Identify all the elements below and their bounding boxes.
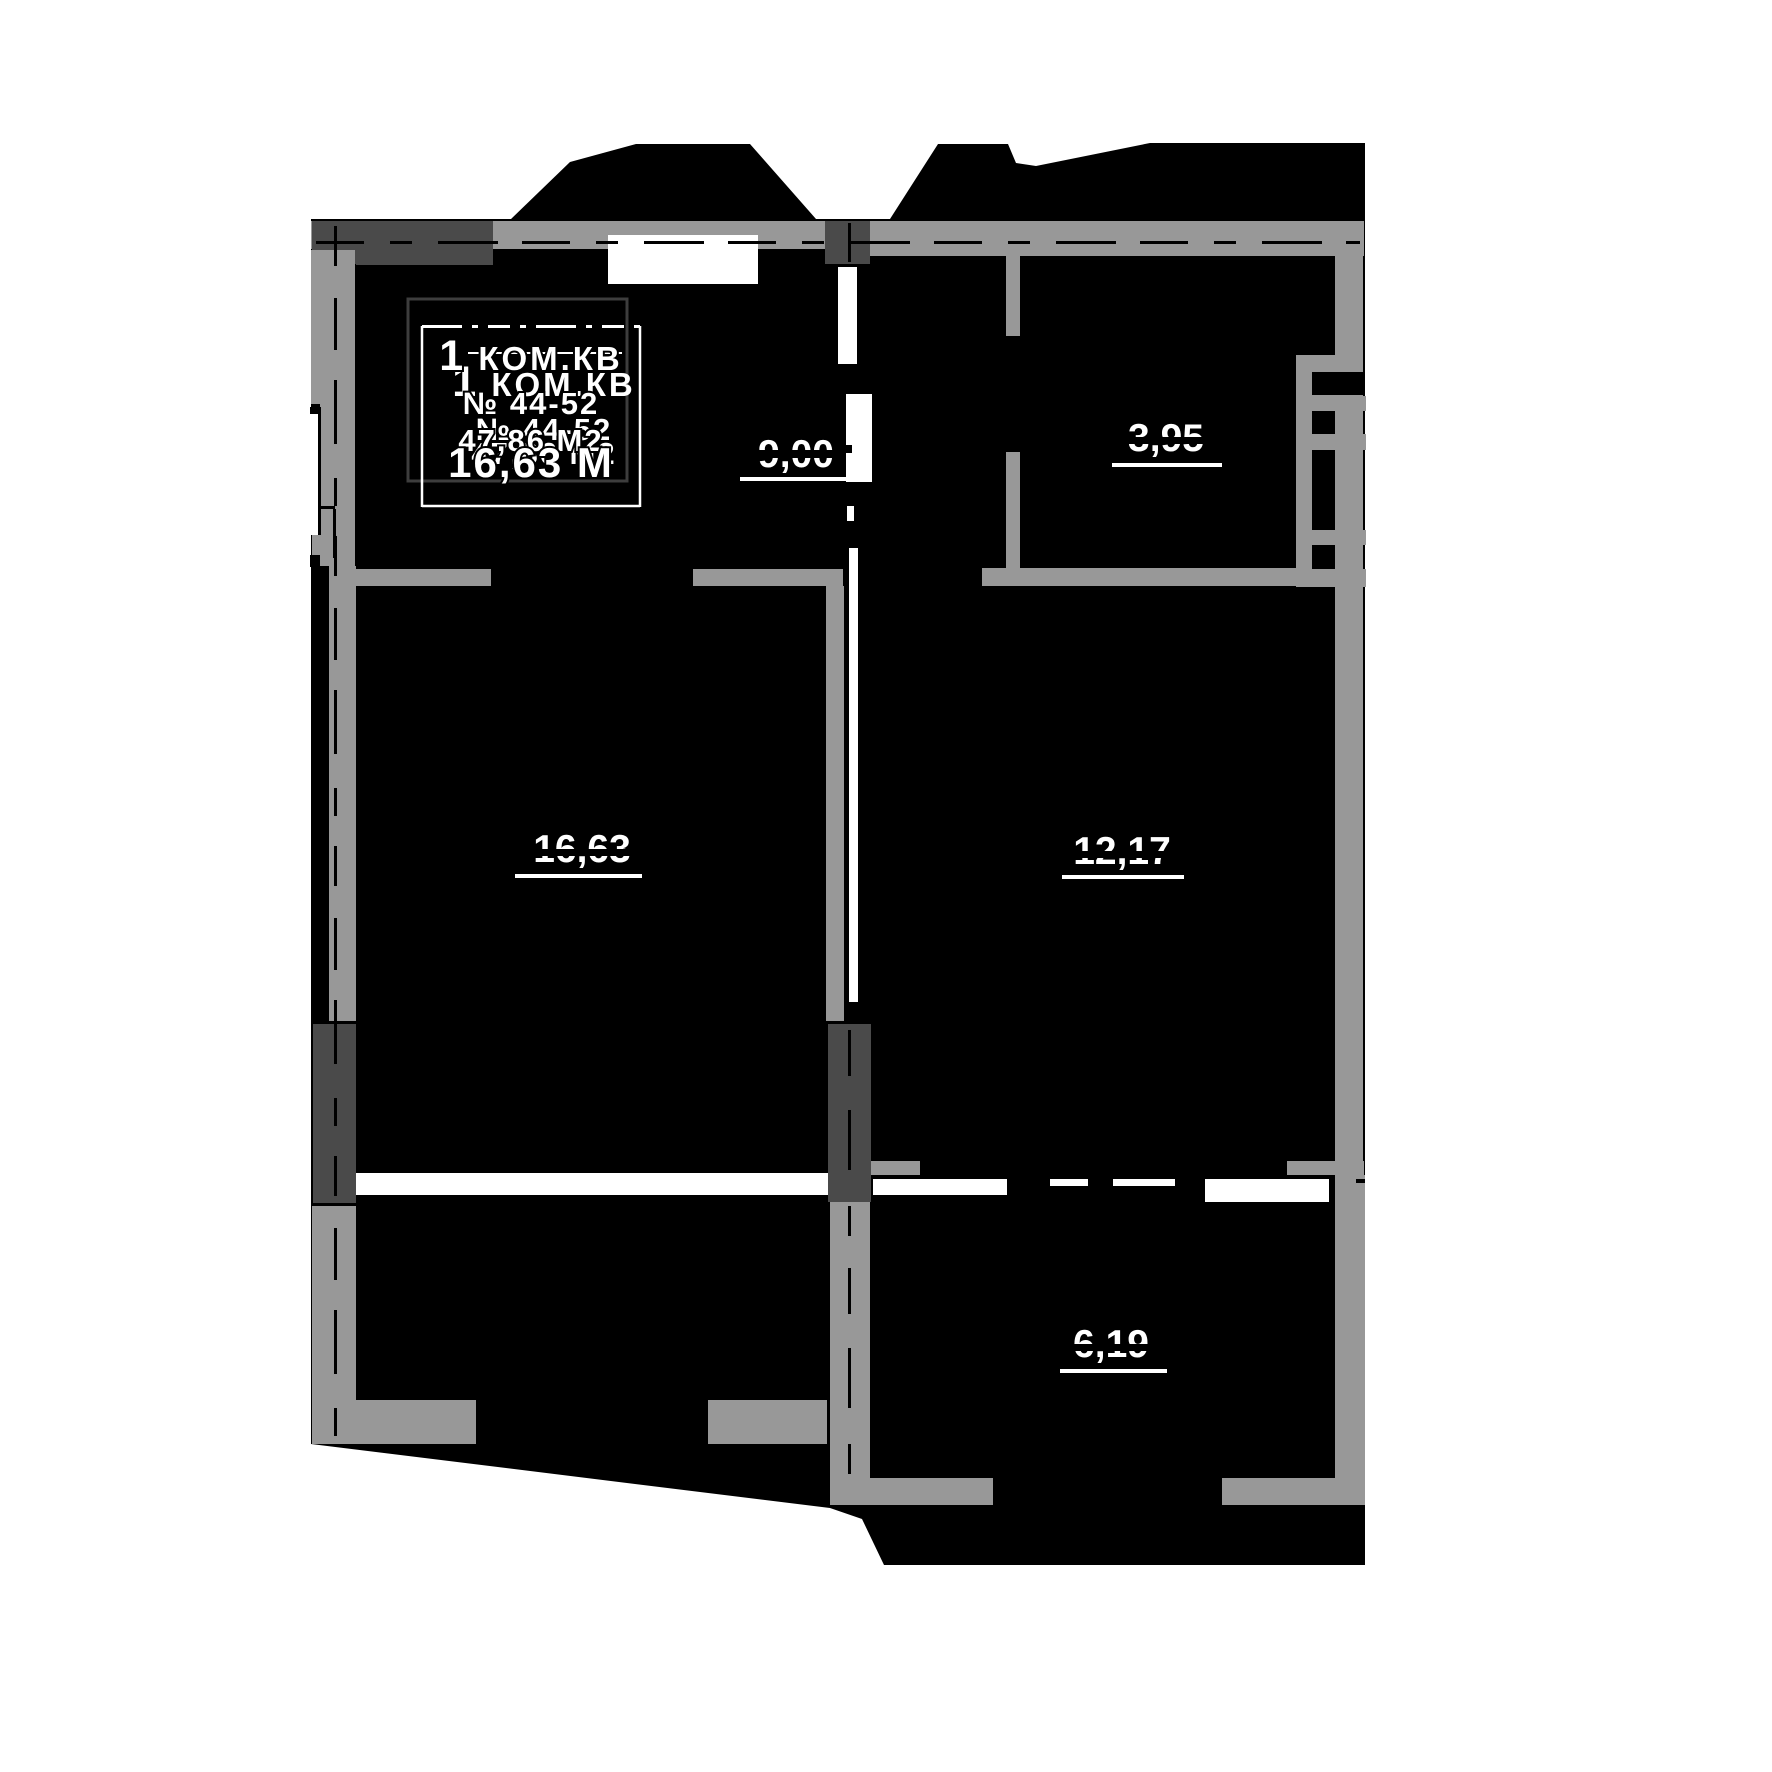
- svg-text:1 КОМ.КВ: 1 КОМ.КВ: [439, 332, 623, 380]
- svg-text:16,63 М: 16,63 М: [448, 439, 614, 486]
- svg-text:№ 44-52: № 44-52: [463, 386, 599, 421]
